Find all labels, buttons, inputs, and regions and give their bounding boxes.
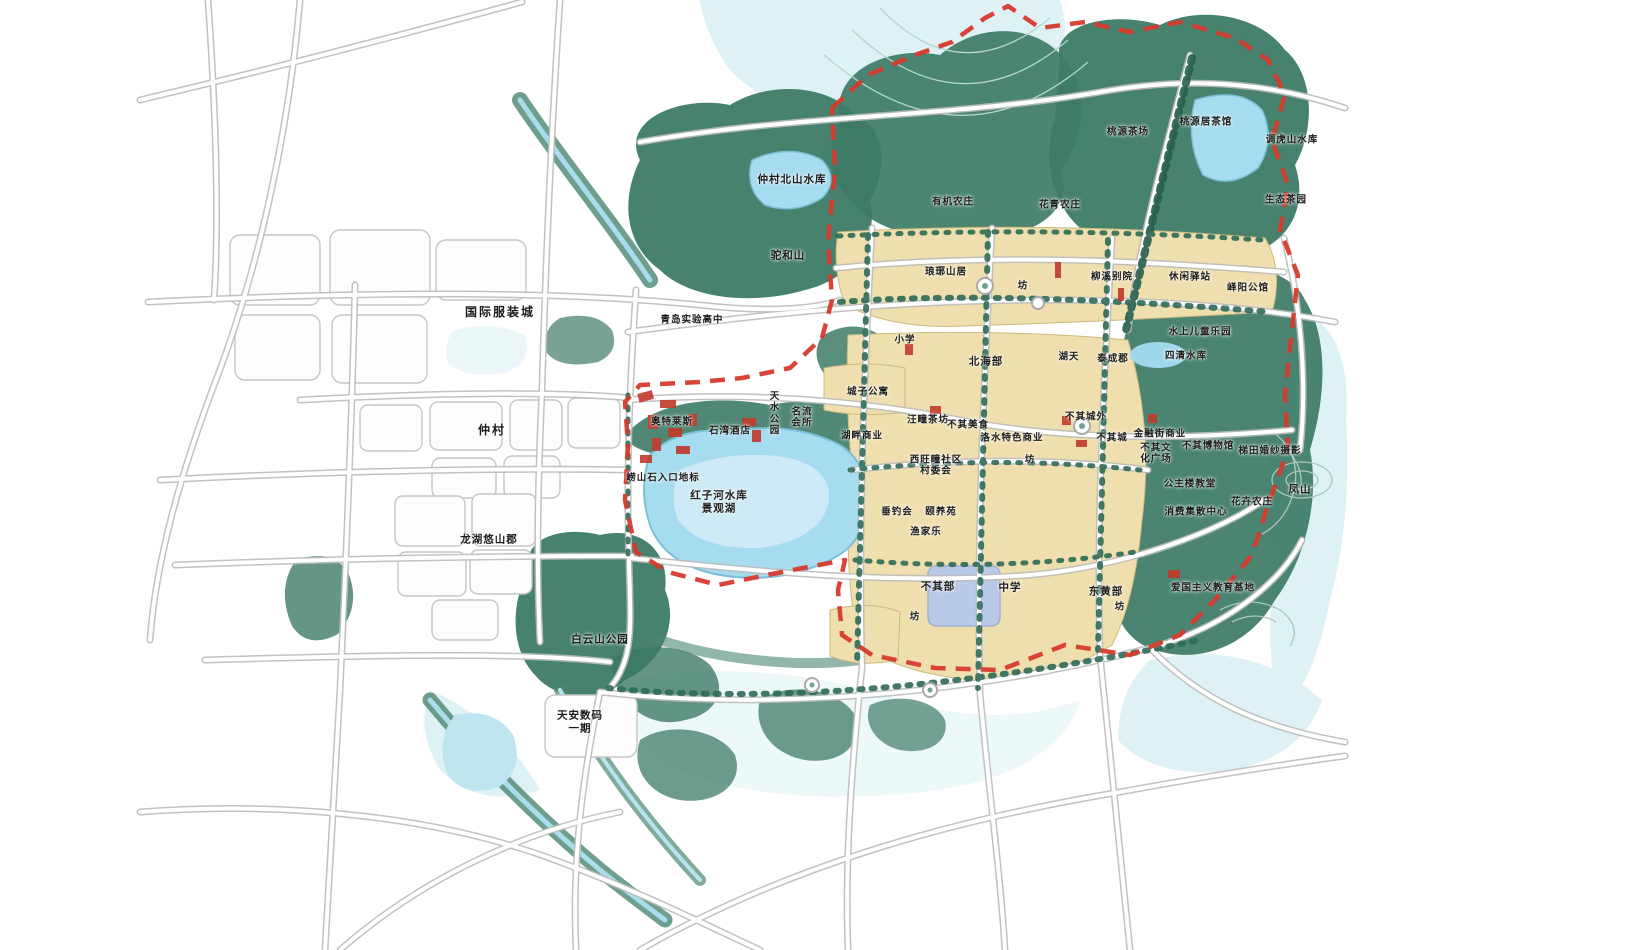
- map-artwork: [0, 0, 1650, 950]
- planning-map: 国际服装城青岛实验高中仲村龙湖悠山郡白云山公园天安数码 一期仲村北山水库驼和山有…: [0, 0, 1650, 950]
